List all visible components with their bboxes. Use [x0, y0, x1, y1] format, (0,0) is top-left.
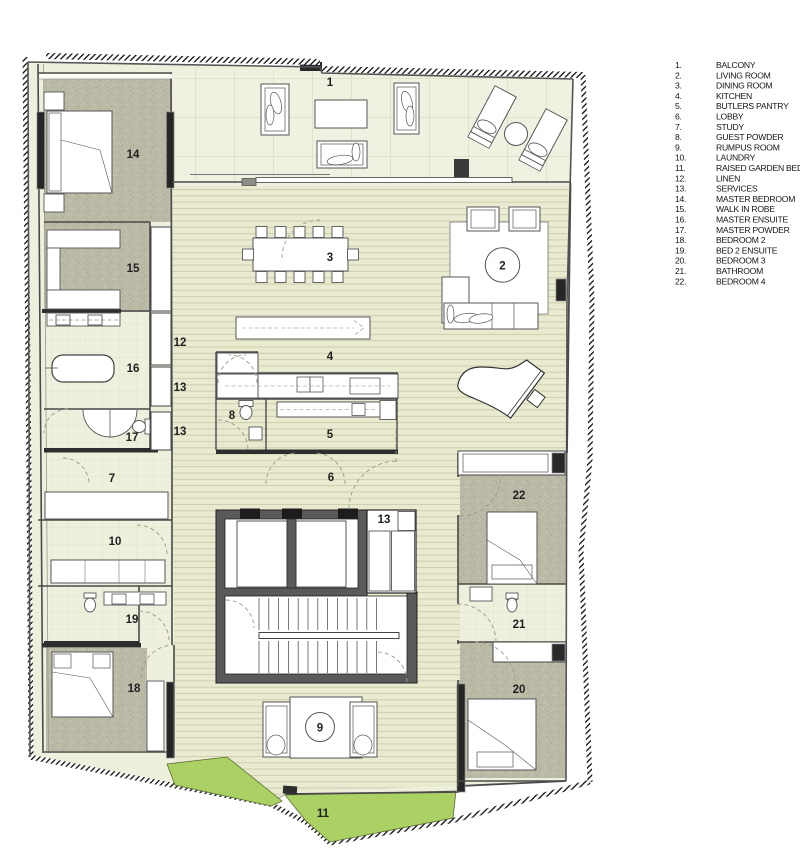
svg-text:LIVING ROOM: LIVING ROOM [716, 70, 771, 80]
svg-text:14.: 14. [675, 194, 686, 204]
svg-text:21: 21 [513, 619, 526, 631]
svg-text:21.: 21. [675, 266, 686, 276]
svg-text:8.: 8. [675, 132, 682, 142]
svg-text:18: 18 [128, 683, 141, 695]
svg-text:12: 12 [174, 337, 187, 349]
svg-text:BEDROOM 4: BEDROOM 4 [716, 276, 766, 286]
svg-text:BEDROOM 3: BEDROOM 3 [716, 256, 766, 266]
svg-text:19: 19 [126, 614, 139, 626]
svg-text:6.: 6. [675, 112, 682, 122]
svg-text:LOBBY: LOBBY [716, 112, 744, 122]
svg-text:GUEST POWDER: GUEST POWDER [716, 132, 784, 142]
svg-text:13: 13 [174, 426, 187, 438]
svg-text:11.: 11. [675, 163, 686, 173]
svg-text:BATHROOM: BATHROOM [716, 266, 763, 276]
svg-text:9: 9 [317, 723, 323, 735]
svg-text:KITCHEN: KITCHEN [716, 91, 752, 101]
svg-text:18.: 18. [675, 235, 686, 245]
svg-text:WALK IN ROBE: WALK IN ROBE [716, 204, 775, 214]
svg-text:17.: 17. [675, 225, 686, 235]
svg-text:12.: 12. [675, 173, 686, 183]
svg-text:19.: 19. [675, 245, 686, 255]
svg-text:BED 2 ENSUITE: BED 2 ENSUITE [716, 245, 778, 255]
svg-text:14: 14 [127, 149, 140, 161]
svg-text:8: 8 [229, 410, 236, 422]
svg-text:BEDROOM 2: BEDROOM 2 [716, 235, 766, 245]
svg-text:13.: 13. [675, 184, 686, 194]
svg-text:10: 10 [109, 536, 122, 548]
svg-text:MASTER BEDROOM: MASTER BEDROOM [716, 194, 795, 204]
svg-text:7: 7 [109, 473, 115, 485]
svg-text:MASTER POWDER: MASTER POWDER [716, 225, 790, 235]
svg-text:RAISED GARDEN BED: RAISED GARDEN BED [716, 163, 800, 173]
svg-text:20.: 20. [675, 256, 686, 266]
svg-text:STUDY: STUDY [716, 122, 744, 132]
svg-text:5: 5 [327, 429, 334, 441]
svg-text:13: 13 [378, 514, 391, 526]
svg-text:LAUNDRY: LAUNDRY [716, 153, 756, 163]
svg-text:DINING ROOM: DINING ROOM [716, 81, 773, 91]
svg-text:4.: 4. [675, 91, 682, 101]
svg-text:20: 20 [513, 684, 526, 696]
svg-text:RUMPUS ROOM: RUMPUS ROOM [716, 142, 780, 152]
svg-text:13: 13 [174, 382, 187, 394]
svg-text:MASTER ENSUITE: MASTER ENSUITE [716, 215, 788, 225]
svg-text:15.: 15. [675, 204, 686, 214]
svg-text:16.: 16. [675, 215, 686, 225]
svg-text:9.: 9. [675, 142, 682, 152]
svg-text:BALCONY: BALCONY [716, 60, 756, 70]
svg-text:BUTLERS PANTRY: BUTLERS PANTRY [716, 101, 789, 111]
svg-text:16: 16 [127, 363, 140, 375]
svg-text:SERVICES: SERVICES [716, 184, 758, 194]
svg-text:2: 2 [499, 261, 505, 273]
svg-text:1.: 1. [675, 60, 682, 70]
svg-text:LINEN: LINEN [716, 173, 740, 183]
svg-text:3: 3 [327, 252, 333, 264]
svg-text:1: 1 [327, 77, 334, 89]
svg-text:22: 22 [513, 490, 526, 502]
svg-text:11: 11 [317, 808, 330, 820]
svg-text:2.: 2. [675, 70, 682, 80]
svg-text:22.: 22. [675, 276, 686, 286]
svg-text:10.: 10. [675, 153, 686, 163]
svg-text:5.: 5. [675, 101, 682, 111]
svg-text:7.: 7. [675, 122, 682, 132]
svg-text:6: 6 [328, 472, 334, 484]
svg-text:17: 17 [126, 432, 139, 444]
svg-text:4: 4 [327, 351, 334, 363]
svg-text:15: 15 [127, 263, 140, 275]
svg-text:3.: 3. [675, 81, 682, 91]
